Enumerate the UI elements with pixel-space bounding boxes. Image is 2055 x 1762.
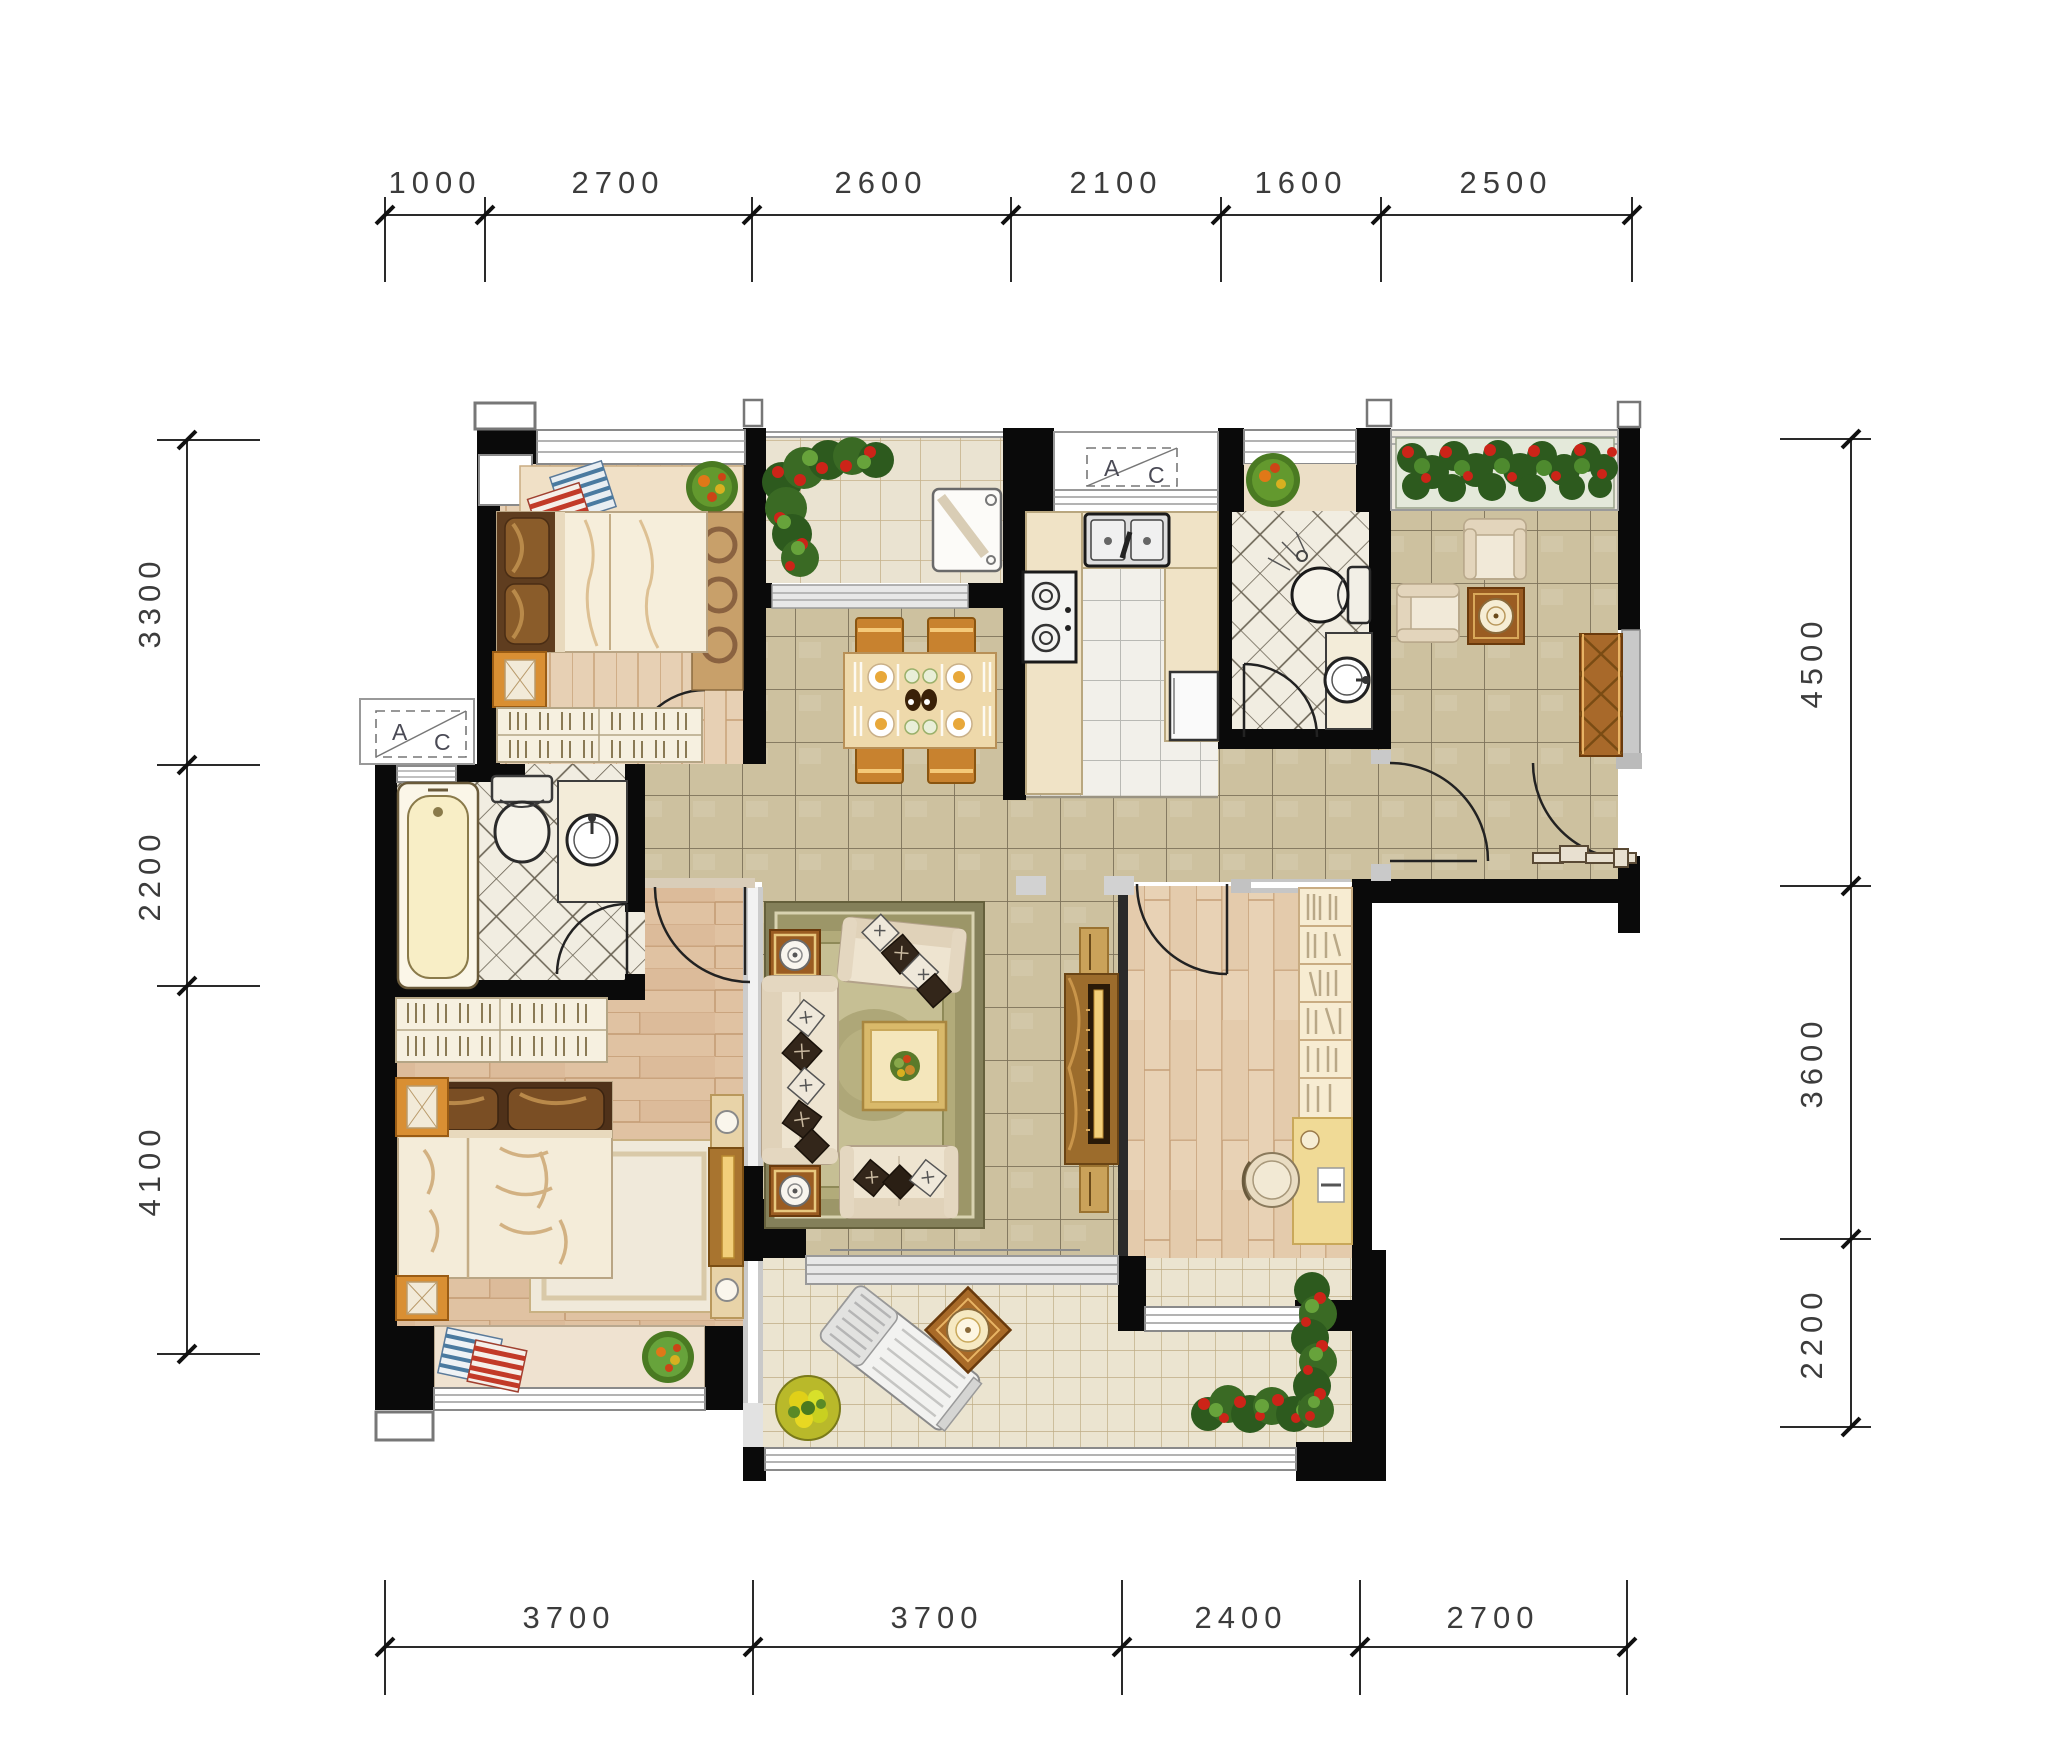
svg-text:C: C: [1148, 462, 1165, 488]
svg-text:2400: 2400: [1195, 1600, 1288, 1635]
svg-text:2600: 2600: [835, 165, 928, 200]
svg-text:1600: 1600: [1255, 165, 1348, 200]
svg-text:2700: 2700: [572, 165, 665, 200]
svg-text:4100: 4100: [132, 1124, 167, 1217]
svg-text:3300: 3300: [132, 556, 167, 649]
svg-text:2200: 2200: [132, 829, 167, 922]
svg-text:4500: 4500: [1794, 616, 1829, 709]
svg-text:2100: 2100: [1070, 165, 1163, 200]
svg-text:A: A: [392, 719, 408, 745]
svg-text:1000: 1000: [389, 165, 482, 200]
svg-text:A: A: [1104, 455, 1120, 481]
svg-text:C: C: [434, 729, 451, 755]
svg-text:2700: 2700: [1447, 1600, 1540, 1635]
svg-text:3700: 3700: [891, 1600, 984, 1635]
svg-text:3700: 3700: [523, 1600, 616, 1635]
svg-text:2200: 2200: [1794, 1287, 1829, 1380]
svg-text:2500: 2500: [1460, 165, 1553, 200]
svg-text:3600: 3600: [1794, 1016, 1829, 1109]
